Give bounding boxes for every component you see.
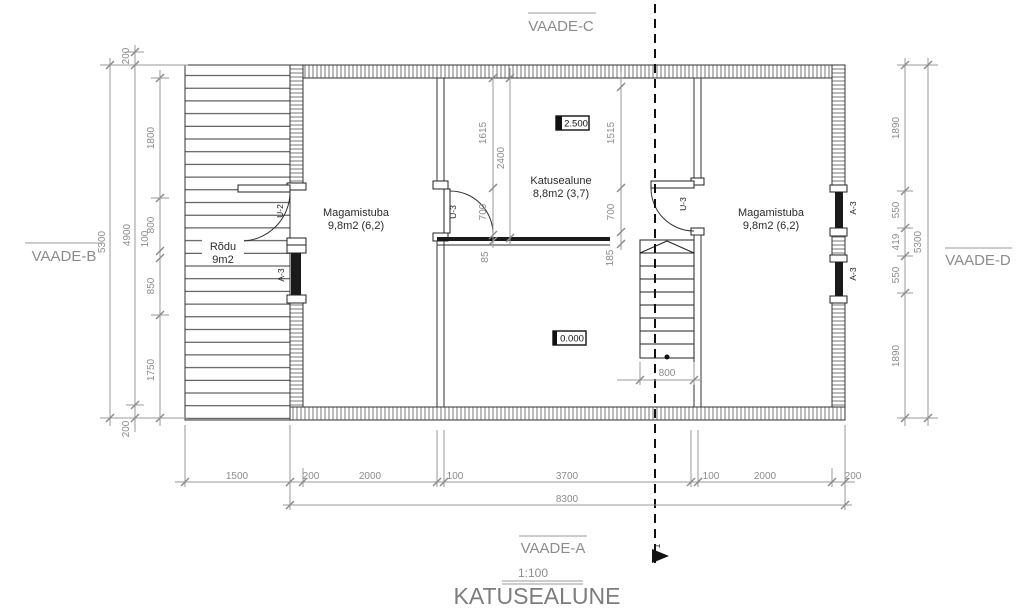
dim-700-right: 700 (606, 203, 617, 220)
dim-left-1750: 1750 (146, 358, 157, 381)
right-wall-upper (832, 65, 845, 185)
dim-bottom-2000-right: 2000 (754, 471, 777, 482)
door-u3-right-label: U-3 (678, 197, 688, 211)
dim-left-100: 100 (140, 230, 151, 247)
dim-right-1890-bottom: 1890 (891, 344, 902, 367)
attic-center-area: 8,8m2 (3,7) (533, 188, 589, 200)
bedroom-right-name: Magamistuba (738, 207, 805, 219)
dim-left-4900: 4900 (122, 223, 133, 246)
staircase (640, 240, 694, 360)
door-u2-label: U-2 (275, 204, 285, 218)
right-wall-lower (832, 303, 845, 407)
dim-stair-800: 800 (659, 368, 676, 379)
dim-right-total: 5300 (913, 230, 924, 253)
drawing-title: KATUSEALUNE (453, 583, 620, 608)
bedroom-right-area: 9,8m2 (6,2) (743, 220, 799, 232)
dim-1515: 1515 (606, 121, 617, 144)
dim-bottom-total: 8300 (556, 494, 579, 505)
dim-85: 85 (480, 251, 491, 263)
dim-left-850: 850 (146, 277, 157, 294)
view-label-top: VAADE-C (528, 18, 594, 35)
dim-right-550-bottom: 550 (891, 266, 902, 283)
balcony-area: 9m2 (212, 254, 233, 266)
window-a3-right-bottom (830, 255, 847, 303)
level-upper-value: 2.500 (564, 119, 588, 130)
level-main-value: 0.000 (560, 334, 584, 345)
dim-left-200-top: 200 (121, 47, 132, 64)
window-a3-right-bottom-label: A-3 (848, 267, 858, 281)
level-marker-main: 0.000 (553, 331, 586, 345)
dim-bottom-1500: 1500 (226, 471, 249, 482)
dim-bottom-3700: 3700 (556, 471, 579, 482)
dim-left-200-bottom: 200 (121, 420, 132, 437)
dim-right-419: 419 (891, 233, 902, 250)
dim-bottom-200-left: 200 (303, 471, 320, 482)
dim-left-1800: 1800 (146, 126, 157, 149)
bottom-wall (290, 407, 845, 420)
dim-1615: 1615 (478, 121, 489, 144)
section-marker-label: 1 (652, 543, 662, 548)
right-wall-mid (832, 236, 845, 255)
dim-right-1890-top: 1890 (891, 116, 902, 139)
floor-plan-drawing: 1 (0, 0, 1024, 608)
left-wall-lower (290, 303, 303, 407)
dim-right-550-top: 550 (891, 201, 902, 218)
newel-post-dot (665, 355, 670, 360)
dim-bottom-100-right: 100 (703, 471, 720, 482)
window-a3-left-label: A-3 (276, 268, 286, 282)
view-label-bottom: VAADE-A (521, 540, 586, 557)
drawing-scale: 1:100 (518, 566, 548, 580)
view-label-right: VAADE-D (945, 252, 1011, 269)
door-u3-left-label: U-3 (448, 205, 458, 219)
view-label-left: VAADE-B (32, 248, 97, 265)
level-marker-upper: 2.500 (556, 116, 589, 130)
dim-bottom-2000-left: 2000 (359, 471, 382, 482)
floor-plan-page: 1 (0, 0, 1024, 608)
window-a3-right-top-label: A-3 (848, 201, 858, 215)
bedroom-left-area: 9,8m2 (6,2) (328, 220, 384, 232)
dim-bottom-100-left: 100 (447, 471, 464, 482)
left-wall-upper (290, 65, 303, 183)
dim-2400: 2400 (496, 146, 507, 169)
section-arrow (652, 549, 669, 563)
attic-center-name: Katusealune (530, 175, 591, 187)
dim-bottom-200-right: 200 (845, 471, 862, 482)
bedroom-left-name: Magamistuba (323, 207, 390, 219)
window-a3-right-top (830, 185, 847, 236)
balcony-name: Rõdu (210, 241, 236, 253)
top-wall (290, 65, 845, 78)
dim-700-left: 700 (478, 203, 489, 220)
dim-185: 185 (605, 249, 616, 266)
dim-left-total: 5300 (97, 230, 108, 253)
title-block: 1:100 KATUSEALUNE (453, 566, 620, 608)
